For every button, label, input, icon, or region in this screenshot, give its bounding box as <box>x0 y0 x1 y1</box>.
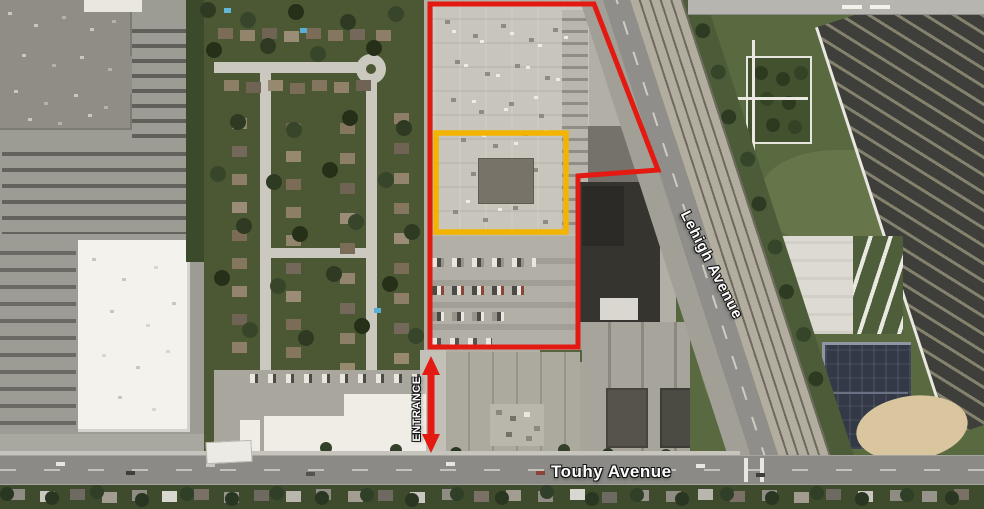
mall-parking-cars <box>250 374 420 383</box>
retail-roof-units <box>496 410 502 415</box>
entrance-label: ENTRANCE <box>411 369 425 449</box>
roof-vents-white <box>452 30 456 33</box>
parking-rows-lower <box>0 238 76 434</box>
navy-building-seam <box>825 392 908 394</box>
roof-center-unit <box>478 158 534 204</box>
tree-square-trees <box>754 66 768 80</box>
parked-cars-row-2 <box>432 286 528 295</box>
store-roof-vents <box>8 12 12 15</box>
residential-street-mid <box>262 248 374 258</box>
backyard-pools <box>224 8 231 13</box>
top-road <box>688 0 984 15</box>
residential-street-top <box>214 62 364 73</box>
touhy-avenue-label: Touhy Avenue <box>551 462 672 482</box>
aerial-satellite-map: Lehigh Avenue Touhy Avenue ENTRANCE <box>0 0 984 509</box>
warehouse-roof-dots <box>92 258 96 261</box>
touhy-lane-dashes <box>0 469 984 471</box>
parked-cars-row-1 <box>432 258 536 267</box>
top-road-markings <box>842 5 862 9</box>
south-building-1 <box>606 388 648 448</box>
south-residential-strip <box>0 485 984 509</box>
residential-trees <box>200 2 216 18</box>
white-building-lawn-stripes <box>853 236 903 334</box>
parking-rows-mid <box>2 140 200 234</box>
roof-vents-dark <box>445 20 450 24</box>
dark-roof-upper-section <box>582 186 624 246</box>
dark-roof-white-patch <box>600 298 638 320</box>
touhy-crosswalk <box>744 458 748 482</box>
house-cluster <box>218 28 233 39</box>
south-strip-trees <box>0 487 14 501</box>
white-warehouse-building <box>78 240 190 432</box>
big-store-roof-white-strip <box>84 0 142 12</box>
parked-cars-row-4 <box>432 338 492 347</box>
parked-cars-row-3 <box>432 312 512 321</box>
big-store-building <box>0 0 132 130</box>
touhy-traffic-cars <box>56 462 65 466</box>
cul-de-sac-island <box>366 64 376 74</box>
billboard <box>205 440 252 464</box>
